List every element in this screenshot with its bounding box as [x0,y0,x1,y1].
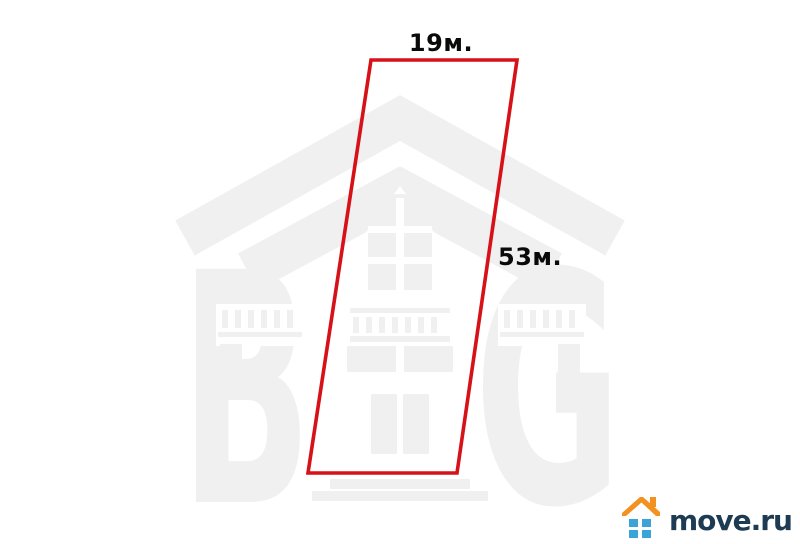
brand-name: move.ru [669,504,792,540]
plot-scheme: B G [0,0,800,544]
house-windows-icon [629,519,651,538]
plot-outline [308,60,517,473]
house-roof-icon [622,497,660,516]
top-dimension-label: 19м. [405,29,477,57]
brand-house-icon [620,492,664,540]
brand-logo: move.ru [620,492,792,540]
plot-boundary-layer [0,0,800,544]
side-dimension-label: 53м. [498,243,562,271]
